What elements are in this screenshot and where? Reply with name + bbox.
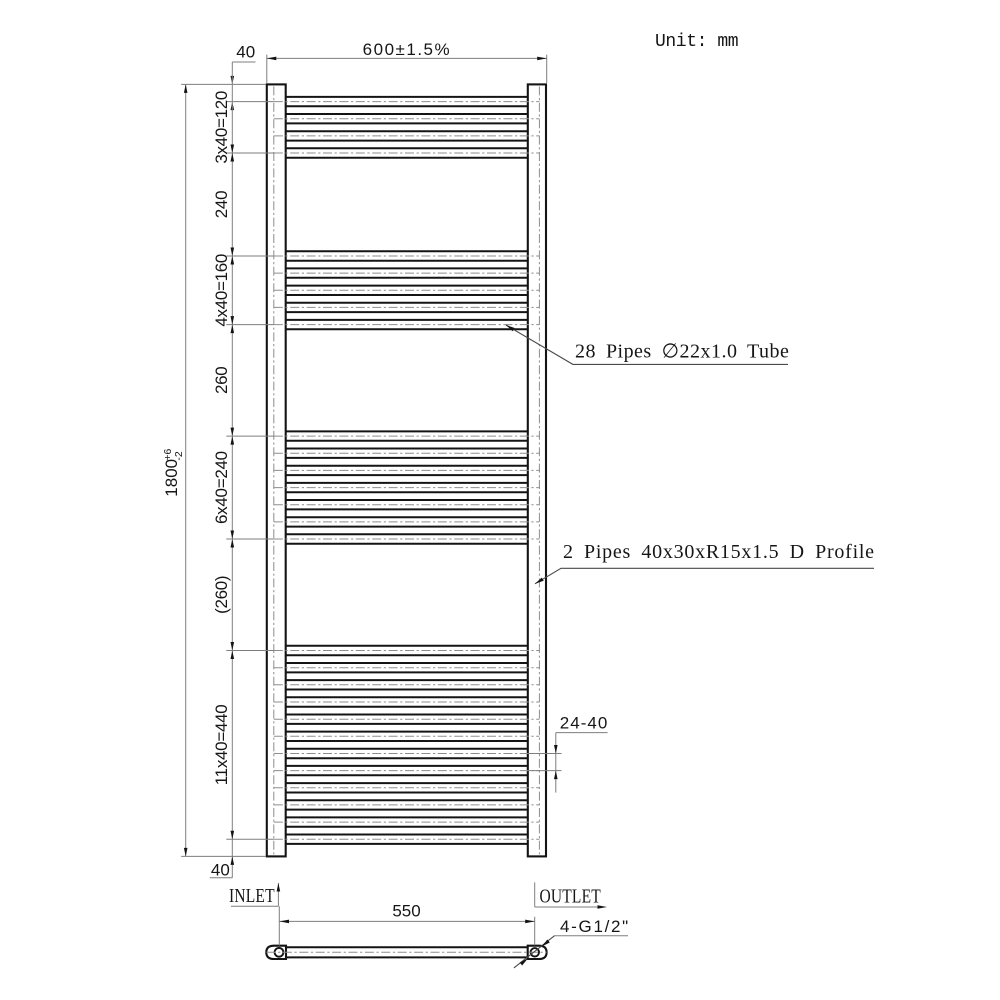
svg-text:28 Pipes ∅22x1.0 Tube: 28 Pipes ∅22x1.0 Tube bbox=[575, 341, 789, 363]
svg-text:4-G1/2": 4-G1/2" bbox=[560, 917, 630, 936]
svg-text:OUTLET: OUTLET bbox=[540, 885, 601, 907]
svg-text:11x40=440: 11x40=440 bbox=[212, 705, 231, 786]
svg-text:260: 260 bbox=[212, 367, 231, 394]
svg-text:240: 240 bbox=[212, 191, 231, 218]
svg-text:(260): (260) bbox=[212, 576, 231, 614]
svg-text:INLET: INLET bbox=[229, 884, 275, 906]
svg-text:3x40=120: 3x40=120 bbox=[212, 91, 231, 164]
svg-text:24-40: 24-40 bbox=[560, 714, 608, 733]
svg-text:4x40=160: 4x40=160 bbox=[212, 254, 231, 327]
svg-text:Unit: mm: Unit: mm bbox=[655, 32, 738, 52]
svg-text:40: 40 bbox=[236, 43, 255, 62]
svg-text:550: 550 bbox=[392, 902, 420, 921]
svg-text:2 Pipes 40x30xR15x1.5 D Profil: 2 Pipes 40x30xR15x1.5 D Profile bbox=[563, 541, 875, 563]
svg-text:1800: 1800 bbox=[162, 459, 181, 497]
svg-text:600±1.5%: 600±1.5% bbox=[363, 40, 451, 59]
svg-text:6x40=240: 6x40=240 bbox=[212, 451, 231, 524]
svg-text:-2: -2 bbox=[173, 451, 185, 460]
svg-text:40: 40 bbox=[211, 860, 230, 879]
